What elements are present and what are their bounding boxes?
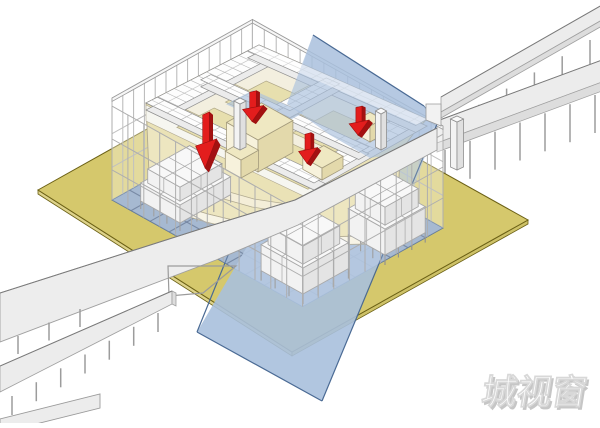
svg-text:城视窗: 城视窗 [479, 373, 590, 412]
